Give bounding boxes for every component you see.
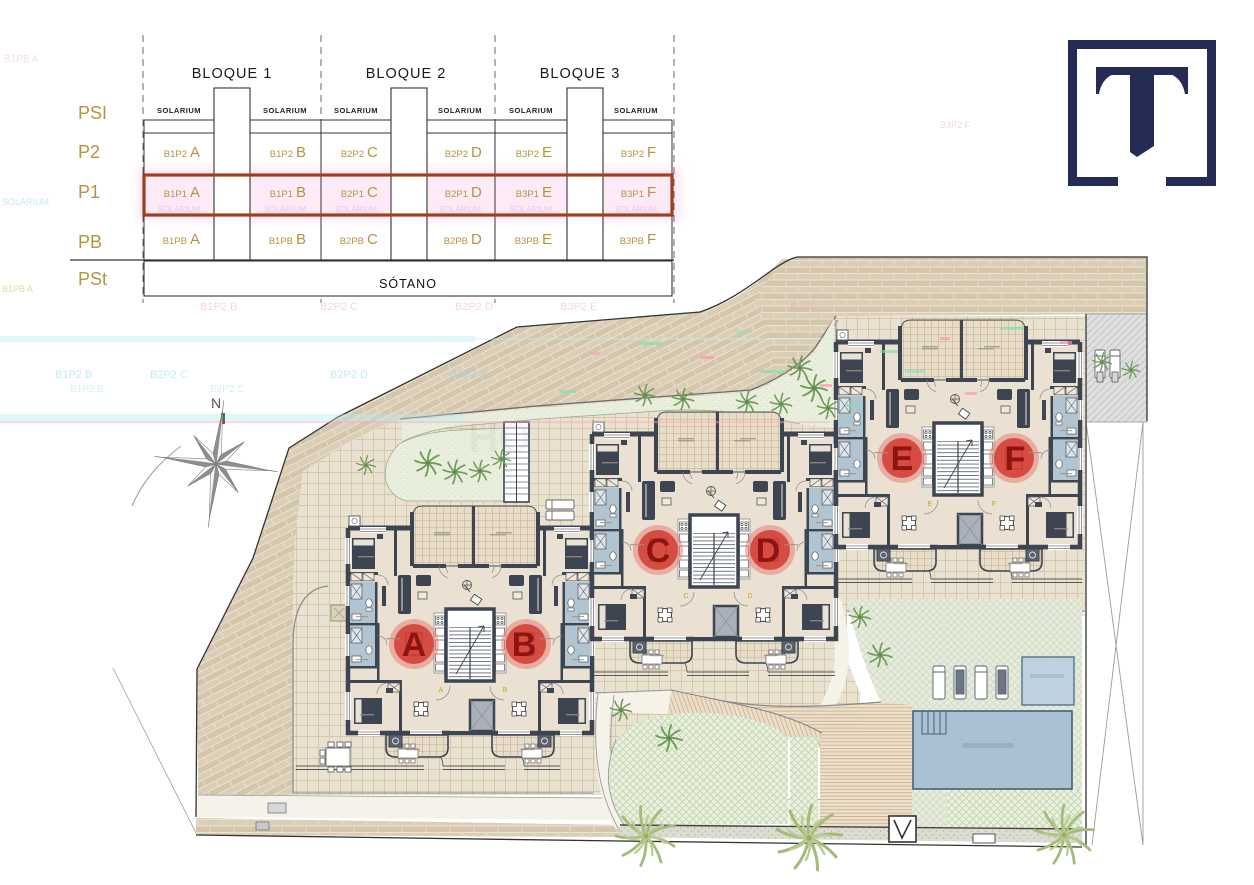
svg-text:B2P2 D: B2P2 D [330, 369, 368, 381]
svg-text:PB: PB [78, 232, 102, 252]
svg-text:F: F [647, 144, 656, 161]
svg-text:B1PB: B1PB [163, 236, 187, 247]
svg-text:B1P2: B1P2 [270, 149, 293, 160]
svg-text:SOLARIUM: SOLARIUM [264, 205, 306, 214]
svg-text:B: B [296, 144, 306, 161]
svg-text:C: C [367, 231, 378, 248]
svg-text:B2P1: B2P1 [341, 189, 364, 200]
svg-text:B3P2 E: B3P2 E [450, 369, 487, 381]
svg-text:PSI: PSI [78, 103, 107, 123]
svg-text:B1PB A: B1PB A [4, 54, 39, 65]
svg-text:B3PB: B3PB [515, 236, 539, 247]
svg-text:BLOQUE 1: BLOQUE 1 [192, 66, 273, 82]
svg-text:E: E [542, 184, 552, 201]
svg-text:D: D [756, 532, 781, 570]
svg-text:B3P2 F: B3P2 F [790, 301, 827, 313]
svg-text:P2: P2 [78, 142, 100, 162]
svg-text:B1P2 B: B1P2 B [55, 369, 92, 381]
svg-text:C: C [646, 532, 671, 570]
svg-text:C: C [367, 144, 378, 161]
svg-text:SOLARIUM: SOLARIUM [615, 205, 657, 214]
svg-text:D: D [471, 144, 482, 161]
svg-text:B3P2 E: B3P2 E [560, 301, 597, 313]
svg-text:B1P1: B1P1 [270, 189, 293, 200]
svg-text:F: F [992, 501, 996, 508]
svg-text:B3P1: B3P1 [621, 189, 644, 200]
svg-text:A: A [190, 184, 200, 201]
svg-text:E: E [542, 144, 552, 161]
svg-text:SOLARIUM: SOLARIUM [614, 106, 658, 115]
svg-text:B3PB: B3PB [620, 236, 644, 247]
svg-text:B: B [503, 687, 508, 694]
svg-text:B2P2: B2P2 [445, 149, 468, 160]
svg-text:B3P2: B3P2 [516, 149, 539, 160]
svg-text:SOLARIUM: SOLARIUM [439, 205, 481, 214]
svg-text:SOLARIUM: SOLARIUM [335, 205, 377, 214]
svg-text:B1P1: B1P1 [164, 189, 187, 200]
svg-text:N: N [211, 395, 221, 411]
svg-text:B2P2 C: B2P2 C [320, 301, 358, 313]
svg-text:SOLARIUM: SOLARIUM [263, 106, 307, 115]
svg-text:B2P1: B2P1 [445, 189, 468, 200]
svg-text:B2PB: B2PB [340, 236, 364, 247]
svg-text:SOLARIUM: SOLARIUM [157, 106, 201, 115]
svg-text:A: A [190, 144, 200, 161]
svg-text:B: B [512, 626, 537, 664]
svg-text:B: B [296, 184, 306, 201]
svg-text:E: E [891, 440, 914, 478]
svg-text:B1P2 B: B1P2 B [70, 384, 104, 395]
svg-text:E: E [542, 231, 552, 248]
svg-text:B2P2: B2P2 [341, 149, 364, 160]
svg-text:A: A [439, 687, 444, 694]
svg-text:SOLARIUM: SOLARIUM [334, 106, 378, 115]
svg-text:B1PB: B1PB [269, 236, 293, 247]
svg-text:SOLARIUM: SOLARIUM [2, 197, 49, 207]
svg-text:B2P2 C: B2P2 C [150, 369, 188, 381]
svg-text:A: A [402, 626, 427, 664]
svg-text:B3P1: B3P1 [516, 189, 539, 200]
svg-text:B2PB: B2PB [444, 236, 468, 247]
svg-text:PSt: PSt [78, 269, 107, 289]
svg-text:B1PB A: B1PB A [2, 284, 33, 294]
svg-text:SOLARIUM: SOLARIUM [510, 205, 552, 214]
svg-text:SÓTANO: SÓTANO [379, 276, 437, 291]
svg-text:B1P2: B1P2 [164, 149, 187, 160]
svg-text:BLOQUE 3: BLOQUE 3 [540, 66, 621, 82]
svg-text:D: D [747, 593, 752, 600]
svg-text:SOLARIUM: SOLARIUM [158, 205, 200, 214]
svg-text:B3P2 F: B3P2 F [940, 120, 971, 130]
svg-text:SOLARIUM: SOLARIUM [438, 106, 482, 115]
svg-text:B2P2 D: B2P2 D [455, 301, 493, 313]
svg-text:B1P2 B: B1P2 B [200, 301, 237, 313]
svg-text:C: C [367, 184, 378, 201]
svg-text:C: C [683, 593, 688, 600]
svg-text:F: F [1005, 440, 1026, 478]
svg-text:B3P2: B3P2 [621, 149, 644, 160]
svg-text:A: A [190, 231, 200, 248]
svg-text:HO: HO [468, 414, 531, 461]
svg-text:F: F [647, 184, 656, 201]
svg-text:P1: P1 [78, 182, 100, 202]
svg-text:B: B [296, 231, 306, 248]
svg-text:B2P2 C: B2P2 C [210, 384, 244, 395]
svg-text:SOLARIUM: SOLARIUM [509, 106, 553, 115]
svg-text:D: D [471, 231, 482, 248]
svg-text:D: D [471, 184, 482, 201]
svg-text:F: F [647, 231, 656, 248]
svg-text:BLOQUE 2: BLOQUE 2 [366, 66, 447, 82]
svg-text:E: E [928, 501, 933, 508]
